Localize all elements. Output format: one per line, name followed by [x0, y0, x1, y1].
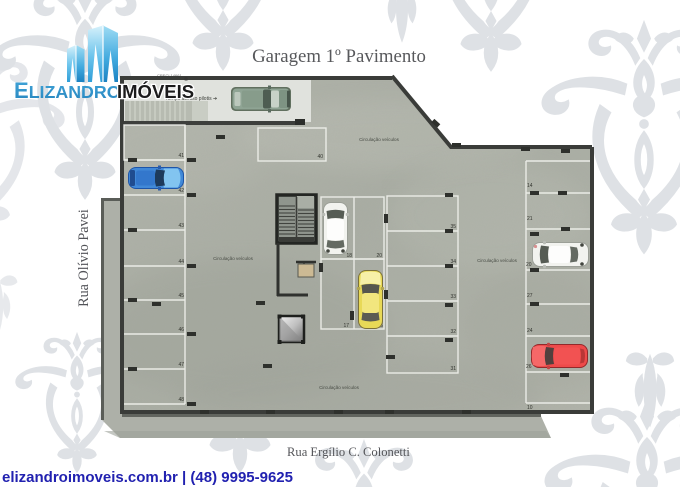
- svg-text:48: 48: [178, 397, 184, 403]
- svg-text:17: 17: [343, 323, 349, 329]
- svg-text:47: 47: [178, 362, 184, 368]
- svg-text:Rua Olívio Pavei: Rua Olívio Pavei: [76, 209, 92, 307]
- svg-text:Circulação veículos: Circulação veículos: [359, 137, 400, 142]
- svg-text:18: 18: [346, 253, 352, 259]
- svg-text:24: 24: [527, 328, 533, 334]
- svg-text:IMÓVEIS: IMÓVEIS: [117, 81, 194, 102]
- svg-text:Garagem 1º Pavimento: Garagem 1º Pavimento: [252, 46, 426, 67]
- svg-text:41: 41: [178, 153, 184, 159]
- svg-text:26: 26: [526, 364, 532, 370]
- svg-text:Circulação veículos: Circulação veículos: [213, 256, 254, 261]
- svg-text:40: 40: [317, 154, 323, 160]
- svg-text:20: 20: [376, 253, 382, 259]
- svg-text:10: 10: [527, 405, 533, 411]
- svg-text:elizandroimoveis.com.br | (48): elizandroimoveis.com.br | (48) 9995-9625: [2, 469, 293, 486]
- svg-text:43: 43: [178, 223, 184, 229]
- svg-text:Circulação veículos: Circulação veículos: [477, 258, 518, 263]
- svg-text:20: 20: [526, 262, 532, 268]
- svg-text:32: 32: [450, 329, 456, 335]
- svg-text:21: 21: [527, 216, 533, 222]
- svg-text:44: 44: [178, 259, 184, 265]
- svg-text:Circulação veículos: Circulação veículos: [319, 385, 360, 390]
- svg-text:ELIZANDRO: ELIZANDRO: [14, 78, 121, 103]
- svg-text:Rua Ergílio C. Colonetti: Rua Ergílio C. Colonetti: [287, 445, 410, 459]
- svg-text:31: 31: [450, 366, 456, 372]
- svg-text:27: 27: [527, 293, 533, 299]
- svg-text:14: 14: [527, 183, 533, 189]
- svg-text:45: 45: [178, 293, 184, 299]
- svg-text:46: 46: [178, 327, 184, 333]
- svg-text:33: 33: [450, 294, 456, 300]
- svg-text:42: 42: [178, 188, 184, 194]
- svg-text:®: ®: [184, 76, 188, 83]
